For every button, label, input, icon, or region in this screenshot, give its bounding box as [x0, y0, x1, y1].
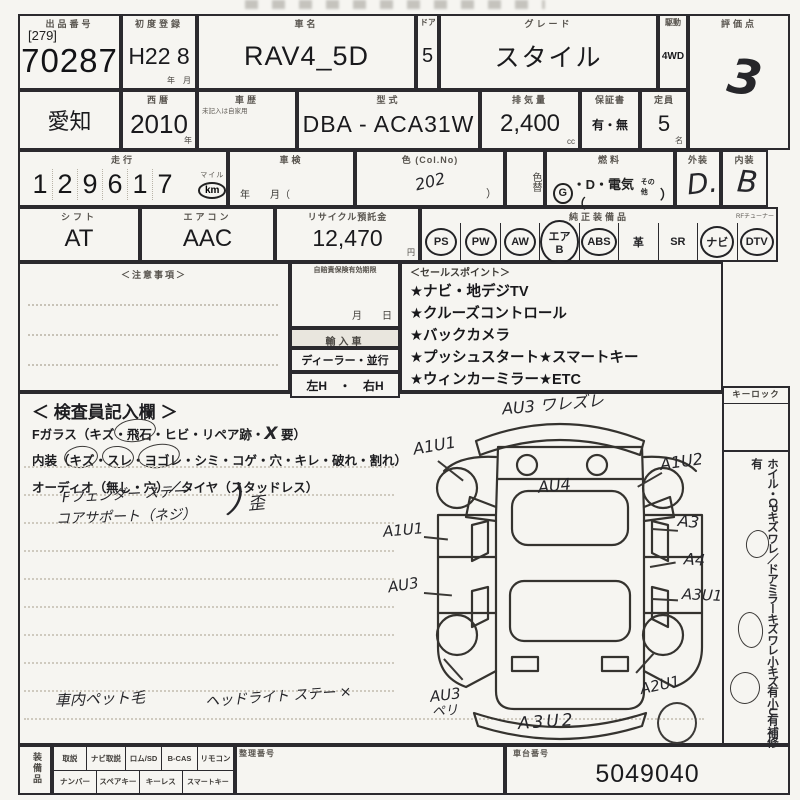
equipment-item-label: ABS: [581, 228, 616, 256]
capacity-cell: 定員 5 名: [640, 90, 688, 150]
lot-cell: 出品番号 [279] 70287: [18, 14, 121, 90]
caution-line: [28, 334, 278, 336]
color-cell: 色 (Col.No) 202 ）: [355, 150, 505, 207]
sales-points-box: ＜セールスポイント＞ ★ナビ・地デジTV ★クルーズコントロール ★バックカメラ…: [400, 262, 723, 392]
equipment-label: 純正装備品: [424, 210, 774, 223]
equipment-item-label: PW: [465, 228, 497, 256]
car-name-value: RAV4_5D: [199, 16, 414, 88]
equipment-item-label: エアB: [540, 220, 578, 264]
fuel-g-circled: G: [553, 183, 573, 204]
insurance-units: 月 日: [352, 307, 392, 322]
displacement-cell: 排気量 2,400 cc: [480, 90, 580, 150]
fuel-label: 燃料: [549, 153, 671, 166]
bottom-item: ロム/SD: [125, 747, 161, 770]
odo-digit: 7: [152, 169, 177, 200]
damage-rear-bumper: A3U2: [517, 712, 576, 733]
fuel-cell: 燃料 G ・D・電気（ その他 ）: [545, 150, 675, 207]
sales-point: ★ナビ・地デジTV: [410, 281, 713, 303]
exterior-grade-cell: 外装 D.: [675, 150, 721, 207]
warranty-cell: 保証書 有・無: [580, 90, 640, 150]
sales-point: ★クルーズコントロール: [410, 303, 713, 325]
equipment-cell: 純正装備品 RFチューナー PS PW AW エアB ABS 革 SR ナビ D…: [420, 207, 778, 262]
bottom-grid: 取説 ナビ取説 ロム/SD B-CAS リモコン ナンバー スペアキー キーレス…: [52, 745, 235, 795]
damage-rr-fender: A3U1: [682, 587, 723, 604]
odo-digit: 1: [28, 169, 52, 200]
keylock-label: キーロック: [724, 388, 788, 404]
equipment-item-label: AW: [504, 228, 536, 256]
mileage-label: 走行: [22, 153, 224, 166]
insurance-cell: 自賠責保険有効期限 月 日: [290, 262, 400, 328]
caution-box: ＜注意事項＞: [18, 262, 290, 392]
bottom-item: ナビ取説: [86, 747, 125, 770]
bottom-item: キーレス: [139, 771, 182, 794]
import-header-label: 輸入車: [292, 333, 398, 348]
aircon-value: AAC: [142, 209, 273, 260]
odo-digit: 2: [52, 169, 77, 200]
glass-x-handwritten: X: [264, 424, 277, 444]
door-cell: ドア 5: [416, 14, 439, 90]
auction-sheet: 出品番号 [279] 70287 初度登録 H22 8 年 月 車名 RAV4_…: [0, 0, 800, 800]
grade-value: スタイル: [441, 16, 656, 88]
shaken-units: 年 月（: [240, 186, 290, 201]
import-type-cell: ディーラー・並行: [290, 348, 400, 372]
door-value: 5: [418, 16, 437, 88]
equipment-item: ナビ: [697, 223, 736, 260]
glass-line: Fガラス（キズ・飛石・ヒビ・リペア跡・X 要）: [32, 424, 306, 443]
aircon-cell: エアコン AAC: [140, 207, 275, 262]
caution-line: [28, 304, 278, 306]
bottom-item: スマートキー: [182, 771, 233, 794]
color-handwritten: 202: [414, 171, 448, 194]
bottom-item: スペアキー: [96, 771, 139, 794]
import-header-cell: 輸入車: [290, 328, 400, 348]
sales-point: ★ウィンカーミラー★ETC: [410, 369, 713, 391]
equipment-item: ABS: [579, 223, 618, 260]
bottom-item: 取説: [54, 747, 86, 770]
glass-req-text: 要）: [281, 428, 306, 442]
bottom-grid-row2: ナンバー スペアキー キーレス スマートキー: [54, 771, 233, 794]
drive-value: 4WD: [660, 16, 686, 88]
shift-value: AT: [20, 209, 138, 260]
equipment-item-label: DTV: [740, 228, 774, 256]
lot-number: 70287: [20, 42, 119, 80]
km-unit-circled: km: [198, 182, 226, 199]
color-change-cell: 色替: [505, 150, 545, 207]
model-code-cell: 型式 DBA - ACA31W: [297, 90, 480, 150]
exterior-grade-handwritten: D.: [686, 168, 719, 199]
odometer: 1 2 9 6 1 7: [28, 169, 177, 200]
displacement-value: 2,400: [482, 92, 578, 148]
note-line: [24, 634, 394, 636]
note-pet-handwritten: 車内ペット毛: [55, 690, 145, 708]
damage-lr-corner-note: ペリ: [432, 704, 459, 719]
bottom-grid-row1: 取説 ナビ取説 ロム/SD B-CAS リモコン: [54, 747, 233, 771]
seiri-number-cell: 整理番号: [235, 745, 505, 795]
note-line: [24, 578, 394, 580]
bottom-item: リモコン: [197, 747, 233, 770]
equipment-item: SR: [658, 223, 697, 260]
mileage-cell: 走行 1 2 9 6 1 7 マイル km: [18, 150, 228, 207]
first-registration-units: 年 月: [167, 75, 191, 86]
grade-cell: グレード スタイル: [439, 14, 658, 90]
history-note: 未記入は自家用: [202, 105, 248, 115]
car-name-cell: 車名 RAV4_5D: [197, 14, 416, 90]
equipment-item: PW: [460, 223, 499, 260]
import-type-value: ディーラー・並行: [292, 350, 398, 370]
prefecture-cell: 愛知: [18, 90, 121, 150]
chassis-number-cell: 車台番号 5049040: [505, 745, 790, 795]
score-cell: 評価点 3: [688, 14, 790, 150]
note-hizumi-handwritten: 歪: [247, 495, 265, 513]
sidebar-line1: ホイル・CPキズ ワレ／ドアミラーキズ ワレ: [766, 458, 778, 654]
odo-digit: 9: [77, 169, 102, 200]
odo-digit: 6: [102, 169, 127, 200]
model-code-value: DBA - ACA31W: [299, 92, 478, 148]
inspector-title: ＜ 検査員記入欄 ＞: [32, 398, 177, 423]
bottom-item: B-CAS: [161, 747, 197, 770]
note-line: [24, 466, 394, 468]
displacement-unit: cc: [567, 137, 575, 146]
sidebar-vertical-text: ホイル・CPキズ ワレ／ドアミラーキズ ワレ 小キズ有 小U有 補修有: [748, 458, 780, 753]
shaken-label: 車検: [232, 153, 351, 166]
note-line: [24, 606, 394, 608]
equipment-item: エアB: [539, 223, 578, 260]
insurance-label: 自賠責保険有効期限: [294, 265, 396, 275]
equipment-item: 革: [618, 223, 657, 260]
equipment-item: AW: [500, 223, 539, 260]
caution-line: [28, 364, 278, 366]
damage-rr-door: A4: [683, 551, 705, 568]
damage-lf-door: A1U1: [382, 521, 423, 539]
top-edge-artifact: [245, 0, 545, 9]
damage-lr-corner: AU3: [429, 686, 461, 705]
equipment-list: PS PW AW エアB ABS 革 SR ナビ DTV: [422, 223, 776, 260]
warranty-value: 有・無: [582, 92, 638, 148]
damage-hood: AU4: [537, 476, 571, 495]
sales-point: ★プッシュスタート★スマートキー: [410, 347, 713, 369]
equipment-item-label: ナビ: [700, 226, 734, 258]
exterior-grade-label: 外装: [679, 153, 717, 166]
equipment-item: PS: [422, 223, 460, 260]
bottom-section-label-cell: 装備品: [18, 745, 52, 795]
bottom-section-label: 装備品: [31, 752, 44, 792]
interior-grade-cell: 内装 B: [721, 150, 768, 207]
shaken-cell: 車検 年 月（: [228, 150, 355, 207]
equipment-item-label: PS: [425, 228, 457, 256]
shift-cell: シフト AT: [18, 207, 140, 262]
equipment-item: DTV: [737, 223, 776, 260]
km-unit-mark: マイル km: [198, 170, 226, 199]
recycle-deposit-value: 12,470: [277, 209, 418, 260]
note-line: [24, 550, 394, 552]
bottom-item: ナンバー: [54, 771, 96, 794]
handle-value: 左H ・ 右H: [292, 374, 398, 396]
odo-digit: 1: [127, 169, 152, 200]
note-line: [24, 662, 394, 664]
year-unit: 年: [184, 135, 192, 146]
capacity-unit: 名: [675, 135, 683, 146]
mile-unit: マイル: [198, 170, 226, 180]
color-paren-close: ）: [486, 185, 497, 201]
drive-cell: 駆動 4WD: [658, 14, 688, 90]
color-change-label: 色替: [507, 162, 543, 202]
prefecture-value: 愛知: [20, 92, 119, 148]
caution-label: ＜注意事項＞: [22, 268, 286, 281]
sales-point: ★バックカメラ: [410, 325, 713, 347]
damage-rf-door: A3: [677, 513, 700, 531]
equipment-note: RFチューナー: [736, 211, 774, 220]
handle-cell: 左H ・ 右H: [290, 372, 400, 398]
interior-grade-handwritten: B: [736, 167, 759, 198]
score-label: 評価点: [692, 17, 786, 30]
equipment-item-label: 革: [629, 228, 648, 256]
recycle-deposit-unit: 円: [407, 247, 415, 258]
year-cell: 西暦 2010 年: [121, 90, 197, 150]
fuel-paren-close: ）: [660, 184, 673, 203]
fuel-other: その他: [641, 177, 660, 197]
chassis-number-value: 5049040: [507, 747, 788, 793]
lot-bracket: [279]: [28, 28, 57, 43]
score-handwritten: 3: [724, 52, 765, 105]
color-label: 色 (Col.No): [359, 153, 501, 166]
first-registration-cell: 初度登録 H22 8 年 月: [121, 14, 197, 90]
history-cell: 車歴 未記入は自家用: [197, 90, 297, 150]
keylock-cell: キーロック: [722, 386, 790, 452]
equipment-item-label: SR: [666, 230, 689, 254]
seiri-number-label: 整理番号: [239, 748, 501, 759]
sales-points-label: ＜セールスポイント＞: [410, 267, 713, 281]
handwritten-empty-circle: [657, 702, 697, 744]
recycle-deposit-cell: リサイクル預託金 12,470 円: [275, 207, 420, 262]
